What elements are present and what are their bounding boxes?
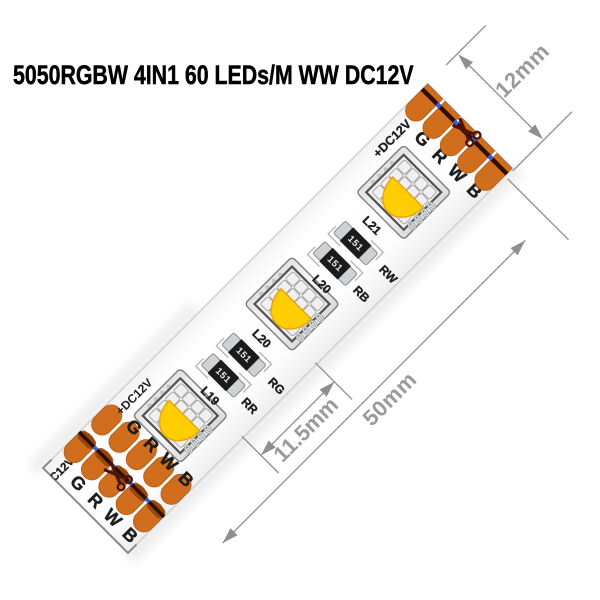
svg-text:5050RGBW 4IN1 60 LEDs/M WW DC1: 5050RGBW 4IN1 60 LEDs/M WW DC12V xyxy=(13,61,414,91)
